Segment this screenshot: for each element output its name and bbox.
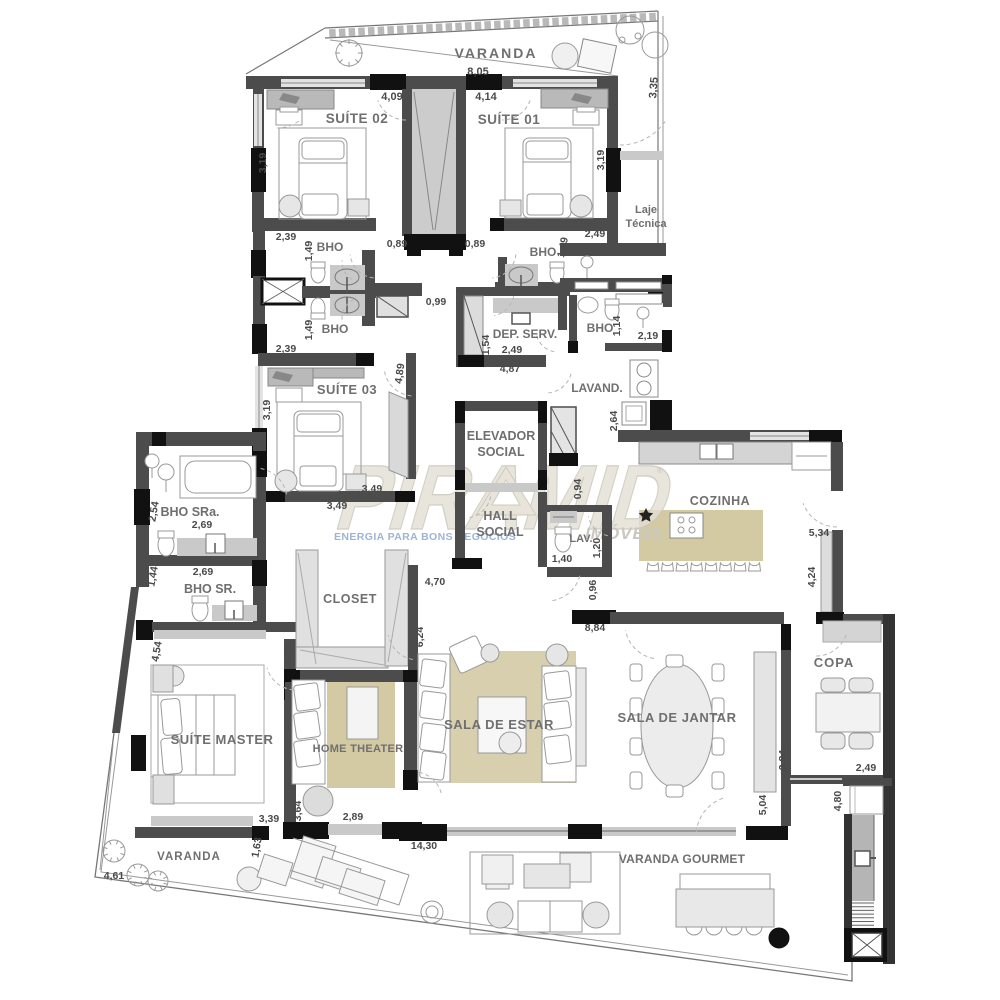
svg-text:®: ® bbox=[657, 466, 663, 475]
svg-text:2,19: 2,19 bbox=[638, 330, 659, 342]
svg-text:2,49: 2,49 bbox=[502, 344, 523, 356]
svg-text:0,89: 0,89 bbox=[465, 238, 486, 250]
svg-text:0,89: 0,89 bbox=[387, 238, 408, 250]
svg-text:4,70: 4,70 bbox=[425, 576, 446, 588]
svg-text:COPA: COPA bbox=[814, 655, 855, 670]
svg-text:SUÍTE 02: SUÍTE 02 bbox=[326, 111, 389, 126]
svg-text:3,35: 3,35 bbox=[647, 77, 661, 99]
svg-text:4,87: 4,87 bbox=[500, 363, 521, 375]
svg-text:2,69: 2,69 bbox=[193, 566, 214, 578]
svg-text:0,99: 0,99 bbox=[426, 296, 447, 308]
svg-text:2,39: 2,39 bbox=[276, 231, 297, 243]
svg-text:CLOSET: CLOSET bbox=[323, 592, 377, 606]
svg-text:4,61: 4,61 bbox=[104, 870, 125, 882]
svg-text:2,49: 2,49 bbox=[585, 228, 606, 240]
svg-text:HOME THEATER: HOME THEATER bbox=[313, 743, 404, 755]
svg-text:SUÍTE MASTER: SUÍTE MASTER bbox=[171, 732, 274, 747]
svg-text:SOCIAL: SOCIAL bbox=[477, 445, 525, 459]
svg-text:3,19: 3,19 bbox=[595, 150, 607, 171]
svg-text:8,05: 8,05 bbox=[467, 66, 488, 78]
svg-text:LAV.: LAV. bbox=[569, 533, 592, 545]
svg-text:3,19: 3,19 bbox=[261, 400, 273, 421]
svg-text:SUÍTE 03: SUÍTE 03 bbox=[317, 382, 377, 397]
svg-text:5,04: 5,04 bbox=[757, 795, 769, 816]
svg-text:3,49: 3,49 bbox=[362, 483, 383, 495]
svg-text:4,19: 4,19 bbox=[282, 645, 294, 666]
svg-text:SALA DE ESTAR: SALA DE ESTAR bbox=[444, 717, 554, 732]
svg-text:SALA DE JANTAR: SALA DE JANTAR bbox=[618, 710, 737, 725]
svg-text:4,80: 4,80 bbox=[832, 791, 844, 812]
svg-text:DEP. SERV.: DEP. SERV. bbox=[493, 327, 558, 341]
svg-text:2,49: 2,49 bbox=[856, 762, 877, 774]
svg-text:COZINHA: COZINHA bbox=[690, 494, 750, 508]
svg-text:SOCIAL: SOCIAL bbox=[476, 525, 524, 539]
svg-text:BHO: BHO bbox=[322, 322, 349, 336]
svg-text:3,84: 3,84 bbox=[777, 750, 789, 771]
svg-text:HALL: HALL bbox=[483, 509, 517, 523]
svg-text:4,14: 4,14 bbox=[475, 91, 497, 103]
svg-text:BHO: BHO bbox=[530, 245, 557, 259]
svg-text:2,39: 2,39 bbox=[276, 343, 297, 355]
svg-text:1,49: 1,49 bbox=[303, 241, 315, 262]
svg-text:VARANDA: VARANDA bbox=[455, 45, 538, 61]
svg-text:0,94: 0,94 bbox=[572, 479, 584, 500]
svg-text:5,34: 5,34 bbox=[809, 527, 830, 539]
svg-text:Laje: Laje bbox=[635, 204, 657, 216]
svg-text:3,39: 3,39 bbox=[259, 813, 280, 825]
svg-text:2,69: 2,69 bbox=[192, 519, 213, 531]
svg-text:4,09: 4,09 bbox=[381, 91, 402, 103]
svg-text:BHO: BHO bbox=[587, 321, 614, 335]
svg-text:2,64: 2,64 bbox=[608, 411, 620, 432]
svg-text:Técnica: Técnica bbox=[626, 218, 668, 230]
svg-text:8,84: 8,84 bbox=[585, 622, 606, 634]
svg-text:VARANDA: VARANDA bbox=[157, 851, 221, 863]
svg-text:2,89: 2,89 bbox=[343, 811, 364, 823]
svg-text:BHO SRa.: BHO SRa. bbox=[160, 505, 219, 519]
svg-text:BHO: BHO bbox=[317, 240, 344, 254]
svg-text:6,24: 6,24 bbox=[414, 627, 426, 648]
svg-text:3,19: 3,19 bbox=[257, 153, 269, 174]
svg-text:4,24: 4,24 bbox=[806, 567, 818, 588]
svg-text:1,20: 1,20 bbox=[591, 538, 603, 559]
svg-text:3,64: 3,64 bbox=[292, 801, 304, 822]
svg-text:LAVAND.: LAVAND. bbox=[571, 381, 623, 395]
svg-text:1,54: 1,54 bbox=[480, 335, 492, 356]
svg-text:14,30: 14,30 bbox=[411, 840, 437, 852]
svg-text:1,40: 1,40 bbox=[552, 553, 573, 565]
svg-text:VARANDA GOURMET: VARANDA GOURMET bbox=[619, 852, 746, 866]
svg-text:3,49: 3,49 bbox=[327, 500, 348, 512]
svg-text:ELEVADOR: ELEVADOR bbox=[467, 429, 536, 443]
svg-text:1,49: 1,49 bbox=[303, 320, 315, 341]
svg-text:0,96: 0,96 bbox=[587, 580, 599, 601]
svg-text:BHO SR.: BHO SR. bbox=[184, 582, 236, 596]
